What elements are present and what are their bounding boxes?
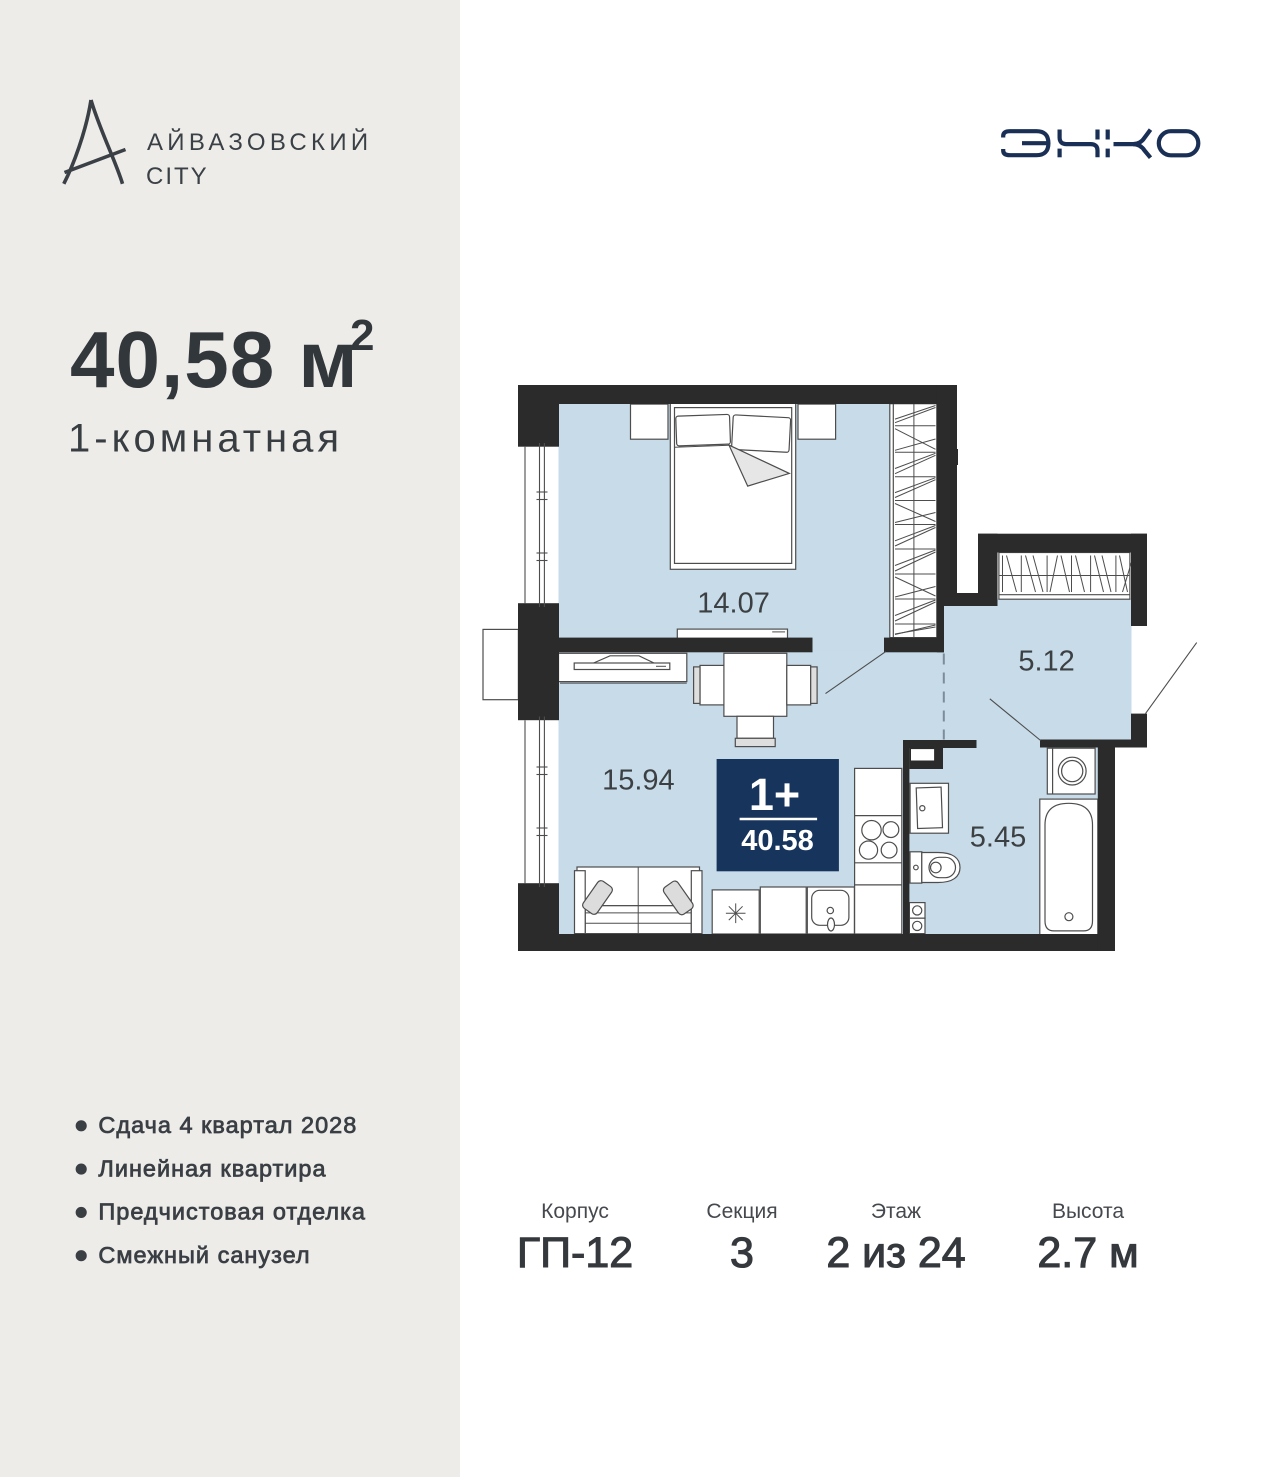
svg-text:Секция: Секция: [706, 1200, 777, 1223]
svg-text:Смежный санузел: Смежный санузел: [98, 1242, 310, 1268]
svg-text:40.58: 40.58: [741, 825, 814, 857]
svg-text:ГП-12: ГП-12: [517, 1229, 633, 1277]
svg-text:АЙВАЗОВСКИЙ: АЙВАЗОВСКИЙ: [147, 128, 372, 156]
svg-text:14.07: 14.07: [697, 588, 770, 620]
svg-text:CITY: CITY: [146, 163, 209, 190]
svg-text:Этаж: Этаж: [871, 1200, 921, 1223]
svg-text:Корпус: Корпус: [541, 1200, 609, 1223]
svg-text:1-комнатная: 1-комнатная: [68, 417, 343, 461]
svg-text:2 из 24: 2 из 24: [826, 1229, 965, 1277]
svg-text:Высота: Высота: [1052, 1200, 1124, 1223]
svg-text:1+: 1+: [749, 769, 800, 820]
svg-text:40,58 м: 40,58 м: [70, 315, 359, 404]
svg-text:Сдача 4 квартал 2028: Сдача 4 квартал 2028: [98, 1112, 357, 1138]
svg-text:Предчистовая отделка: Предчистовая отделка: [98, 1199, 366, 1225]
svg-text:5.45: 5.45: [970, 822, 1026, 854]
svg-text:15.94: 15.94: [602, 765, 675, 797]
svg-text:Линейная квартира: Линейная квартира: [98, 1155, 326, 1181]
svg-text:2: 2: [350, 311, 374, 360]
svg-text:3: 3: [730, 1229, 754, 1277]
svg-text:2.7 м: 2.7 м: [1037, 1229, 1138, 1277]
svg-text:5.12: 5.12: [1018, 645, 1074, 677]
